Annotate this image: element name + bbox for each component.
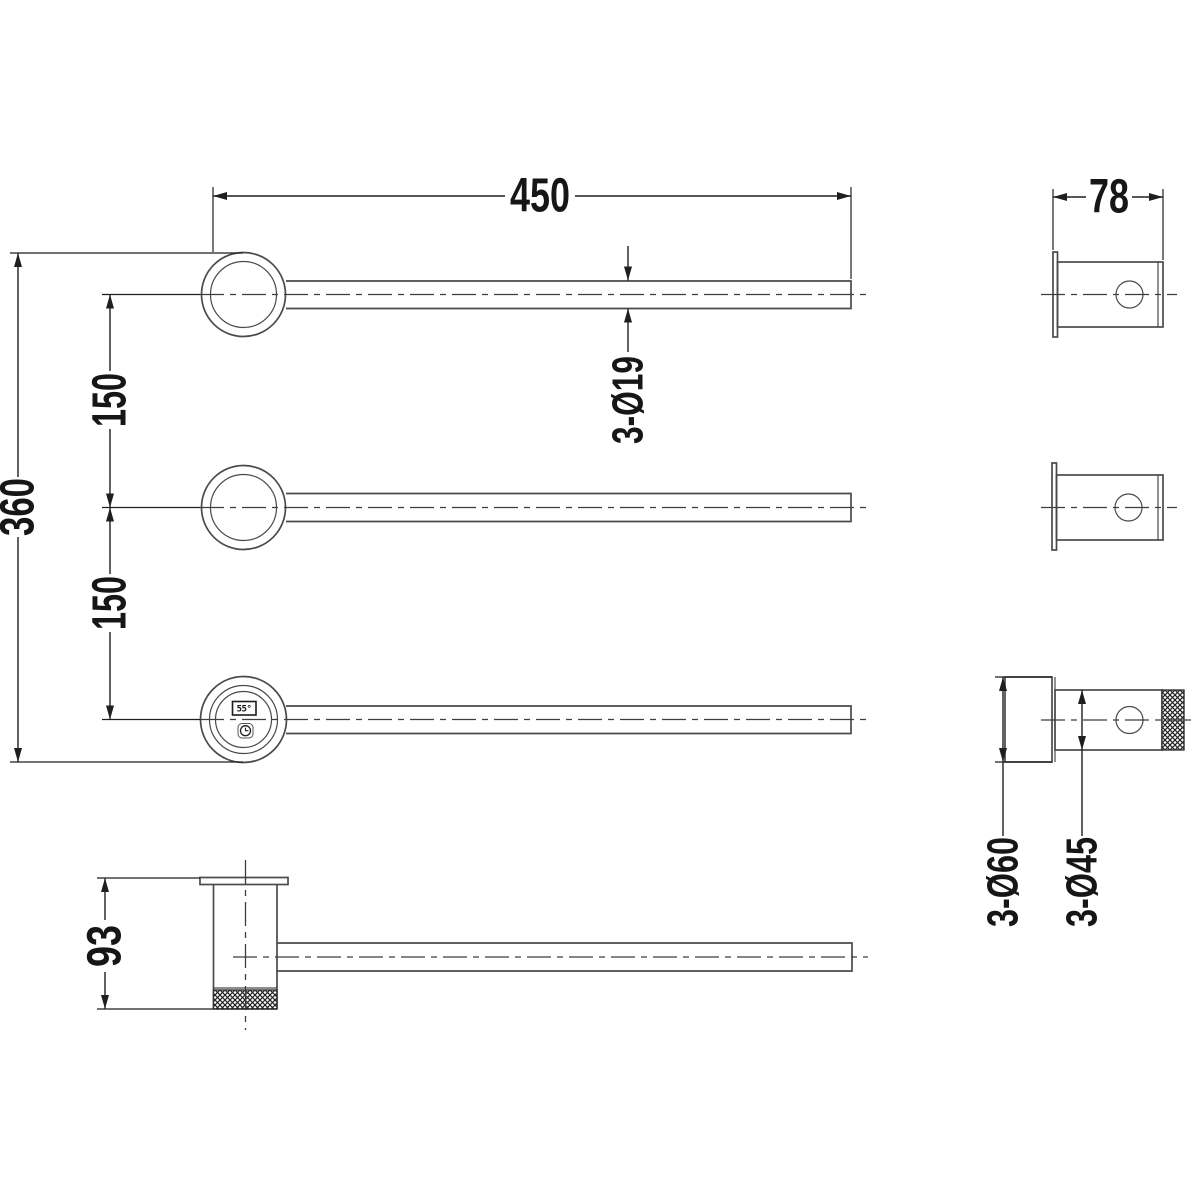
drawing-page: 55° 450 78 — [0, 0, 1200, 1200]
dim-label-bracket-depth: 78 — [1089, 171, 1129, 224]
arrowhead-down — [624, 267, 632, 281]
arrowhead-down — [106, 494, 114, 508]
dim-spacing-lower: 150 — [84, 508, 201, 720]
dim-spacing-upper: 150 — [84, 295, 201, 508]
arrowhead-left — [1053, 193, 1067, 201]
arrowhead-up — [14, 253, 22, 267]
timer-button — [238, 724, 253, 739]
technical-drawing-canvas: 55° 450 78 — [0, 0, 1200, 1200]
dim-label-overall-height: 360 — [0, 478, 45, 536]
temperature-display: 55° — [233, 702, 257, 716]
dim-label-flange-diameter: 3-Ø60 — [979, 837, 1028, 927]
arrowhead-up — [106, 295, 114, 309]
dim-label-bar-length: 450 — [510, 170, 570, 223]
dim-bracket-depth: 78 — [1053, 171, 1163, 261]
dim-label-bar-diameter: 3-Ø19 — [604, 356, 653, 444]
dim-body-diameter: 3-Ø45 — [1058, 690, 1107, 927]
front-view: 55° — [200, 253, 868, 763]
clock-hands-icon — [246, 728, 249, 731]
bottom-view-bracket: 93 — [79, 860, 869, 1030]
side-view-top-bracket — [1041, 252, 1177, 337]
arrowhead-left — [213, 192, 227, 200]
arrowhead-up — [624, 309, 632, 323]
arrowhead-up — [101, 878, 109, 892]
arrowhead-right — [1149, 193, 1163, 201]
dim-bar-length: 450 — [213, 170, 851, 280]
side-view-middle-bracket — [1041, 463, 1177, 550]
dim-label-bracket-height: 93 — [79, 925, 132, 967]
arrowhead-up — [106, 508, 114, 522]
arrowhead-up — [1078, 690, 1086, 704]
arrowhead-down — [14, 748, 22, 762]
dim-bar-diameter: 3-Ø19 — [604, 246, 653, 444]
arrowhead-down — [101, 995, 109, 1009]
side-view-bottom-bracket: 3-Ø60 3-Ø45 — [979, 677, 1198, 927]
temperature-value: 55° — [237, 705, 252, 715]
dim-flange-diameter: 3-Ø60 — [979, 677, 1053, 927]
dim-label-spacing-upper: 150 — [84, 373, 137, 427]
dim-label-spacing-lower: 150 — [84, 576, 137, 630]
arrowhead-down — [1078, 736, 1086, 750]
dim-label-body-diameter: 3-Ø45 — [1058, 837, 1107, 927]
arrowhead-right — [837, 192, 851, 200]
flange-plate — [200, 878, 288, 885]
arrowhead-down — [106, 706, 114, 720]
